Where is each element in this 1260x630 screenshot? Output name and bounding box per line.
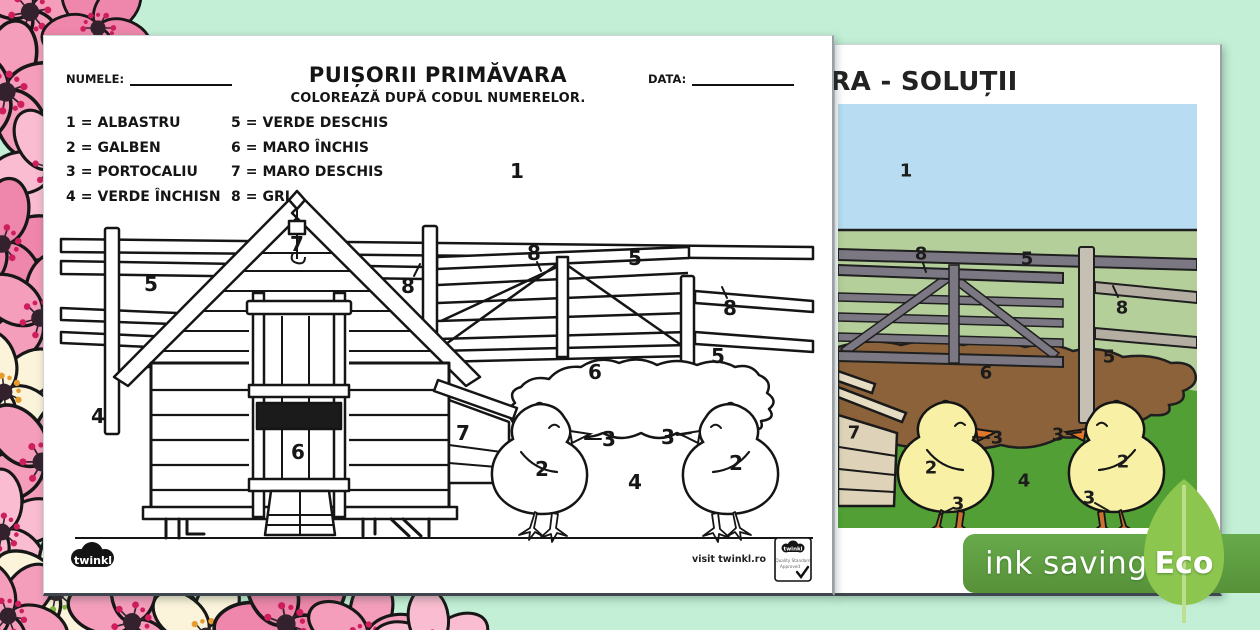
worksheet-page: NUMELE: PUIȘORII PRIMĂVARA COLOREAZĂ DUP… bbox=[43, 35, 834, 596]
twinkl-logo: twinkl bbox=[69, 542, 117, 574]
coloring-scene-art bbox=[44, 36, 835, 597]
svg-text:twinkl: twinkl bbox=[783, 547, 802, 553]
page-canvas: PUIȘORII PRIMĂVARA - SOLUȚII bbox=[0, 0, 1260, 630]
eco-label: Eco bbox=[1143, 546, 1225, 581]
solution-scene bbox=[838, 104, 1197, 528]
solution-scene-art bbox=[838, 104, 1197, 528]
quality-standard-badge: twinkl Quality Standard Approved bbox=[774, 537, 812, 582]
ink-saving-label: ink saving bbox=[985, 545, 1148, 581]
visit-twinkl-link[interactable]: visit twinkl.ro bbox=[692, 554, 766, 565]
svg-text:Quality Standard: Quality Standard bbox=[775, 558, 811, 563]
svg-text:twinkl: twinkl bbox=[74, 554, 112, 567]
svg-text:Approved: Approved bbox=[780, 564, 800, 569]
